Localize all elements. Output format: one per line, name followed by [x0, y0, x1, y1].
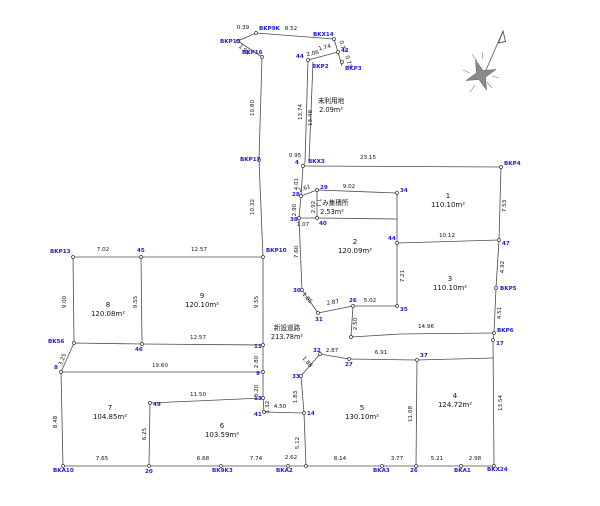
- parcel-area-label: 110.10m²: [433, 284, 467, 292]
- survey-point: [140, 256, 143, 259]
- parcel-area-label: 130.10m²: [345, 413, 379, 421]
- dimension-label: 10.32: [250, 199, 256, 215]
- survey-point: [500, 166, 503, 169]
- dimension-label: 8.52: [285, 26, 297, 32]
- dimension-label: 10.12: [439, 233, 455, 239]
- survey-point-label: 13: [254, 396, 262, 402]
- dimension-label: 2.80: [254, 355, 260, 368]
- dimension-label: 11.50: [190, 392, 206, 398]
- survey-point: [255, 32, 258, 35]
- survey-point-label: BKP2: [312, 64, 329, 70]
- dimension-label: 1.83: [293, 390, 299, 403]
- survey-point-label: 30: [293, 288, 301, 294]
- dimension-label: 2.98: [469, 456, 482, 462]
- dimension-label: 5.12: [295, 437, 301, 449]
- survey-point: [396, 192, 399, 195]
- dimension-label: 2.90: [292, 203, 298, 216]
- survey-point-label: 42: [341, 48, 349, 54]
- survey-point-label: 33: [292, 374, 300, 380]
- dimension-label: 4.51: [497, 306, 503, 319]
- special-area-label: 新設道路: [274, 323, 301, 332]
- dimension-label: 5.02: [364, 298, 376, 304]
- dimension-label: 14.96: [418, 324, 434, 330]
- survey-point: [307, 59, 310, 62]
- survey-point-label: BKA3: [373, 468, 390, 474]
- dimension-label: 10.80: [250, 100, 256, 116]
- survey-point-label: BKP13: [50, 249, 71, 255]
- dimension-label: 13.74: [298, 104, 304, 120]
- survey-point-label: BKP16: [242, 50, 263, 56]
- survey-point: [416, 359, 419, 362]
- survey-point: [352, 305, 355, 308]
- survey-point-label: 38: [290, 217, 298, 223]
- survey-point-label: 49: [153, 402, 161, 408]
- dimension-label: 9.55: [254, 295, 260, 308]
- survey-point-label: 37: [420, 353, 428, 359]
- survey-point-label: BKX24: [487, 467, 508, 473]
- survey-point-label: BKX3: [308, 159, 325, 165]
- survey-point: [60, 371, 63, 374]
- parcel-area-label: 120.10m²: [185, 301, 219, 309]
- survey-point-label: 26: [349, 298, 357, 304]
- dimension-label: 4.50: [274, 404, 287, 410]
- dimension-label: 7.74: [250, 456, 263, 462]
- survey-point-label: BK9K3: [212, 468, 233, 474]
- survey-point: [141, 343, 144, 346]
- parcel-number-label: 5: [360, 404, 364, 412]
- survey-point-label: 44: [388, 236, 396, 242]
- dimension-label: 8.14: [334, 456, 347, 462]
- parcel-number-label: 3: [448, 275, 452, 283]
- survey-point: [300, 375, 303, 378]
- survey-point-label: 44: [296, 54, 304, 60]
- survey-point-label: 8: [54, 365, 58, 371]
- survey-point-label: BKP5: [500, 286, 517, 292]
- parcel-number-label: 2: [353, 238, 357, 246]
- dimension-label: 7.53: [502, 199, 508, 212]
- dimension-label: 11.08: [408, 406, 414, 422]
- survey-point: [350, 336, 353, 339]
- dimension-label: 7.65: [96, 456, 109, 462]
- special-area-label: ごみ集積所: [316, 198, 349, 207]
- survey-point: [305, 465, 308, 468]
- dimension-label: 2.87: [326, 348, 339, 354]
- dimension-label: 0.39: [237, 25, 250, 31]
- survey-point: [149, 402, 152, 405]
- survey-point: [262, 371, 265, 374]
- survey-point: [337, 51, 340, 54]
- survey-point-label: 35: [400, 307, 408, 313]
- dimension-label: 0.95: [289, 153, 302, 159]
- dimension-label: 2.50: [353, 317, 359, 330]
- survey-point-label: 28: [292, 192, 300, 198]
- survey-point: [300, 195, 303, 198]
- parcel-area-label: 110.10m²: [431, 201, 465, 209]
- survey-point-label: BKP6: [497, 328, 514, 334]
- dimension-label: 6.68: [197, 456, 210, 462]
- dimension-label: 19.60: [152, 363, 168, 369]
- survey-point: [72, 256, 75, 259]
- survey-point-label: 41: [254, 412, 262, 418]
- survey-point-label: 40: [319, 221, 327, 227]
- dimension-label: 3.77: [391, 456, 404, 462]
- survey-point-label: BKX14: [313, 32, 334, 38]
- special-area-label: 2.09m²: [319, 106, 343, 114]
- dimension-label: 1.07: [297, 222, 310, 228]
- parcel-area-label: 104.85m²: [93, 413, 127, 421]
- survey-point-label: BKP17: [240, 157, 261, 163]
- survey-point: [317, 312, 320, 315]
- parcel-number-label: 1: [446, 192, 450, 200]
- dimension-label: 5.21: [431, 456, 444, 462]
- cadastral-survey-page: 0.398.521.960.770.731.742.0613.7413.480.…: [0, 0, 600, 506]
- survey-point: [495, 287, 498, 290]
- survey-point: [303, 412, 306, 415]
- parcel-number-label: 9: [200, 292, 204, 300]
- survey-point: [148, 465, 151, 468]
- survey-point-label: 46: [135, 347, 143, 353]
- survey-point: [492, 339, 495, 342]
- survey-point-label: BKP15: [220, 39, 241, 45]
- survey-point-label: BK56: [48, 339, 64, 345]
- dimension-label: 9.55: [133, 295, 139, 308]
- survey-point-label: 47: [502, 241, 510, 247]
- dimension-label: 9.00: [62, 295, 68, 308]
- survey-point-label: 9: [256, 371, 260, 377]
- survey-point-label: BKA2: [276, 468, 293, 474]
- special-area-label: 未利用地: [318, 96, 345, 105]
- survey-point: [302, 165, 305, 168]
- dimension-label: 6.91: [375, 350, 388, 356]
- survey-point-label: BKA1: [454, 468, 471, 474]
- dimension-label: 13.48: [308, 110, 314, 126]
- survey-point-label: BKA10: [53, 468, 74, 474]
- parcel-area-label: 124.72m²: [438, 401, 472, 409]
- survey-point-label: BKP9K: [259, 26, 281, 32]
- dimension-label: 7.02: [97, 247, 109, 253]
- special-area-label: 213.78m²: [271, 333, 303, 341]
- survey-point: [301, 289, 304, 292]
- survey-point: [396, 242, 399, 245]
- survey-point-label: 14: [307, 411, 315, 417]
- survey-point: [493, 332, 496, 335]
- survey-point: [73, 342, 76, 345]
- dimension-label: 2.62: [285, 455, 297, 461]
- dimension-label: 4.92: [500, 261, 506, 273]
- survey-point-label: BKP4: [504, 161, 521, 167]
- dimension-label: 12.57: [191, 247, 207, 253]
- survey-point-label: 34: [400, 188, 408, 194]
- parcel-area-label: 120.08m²: [91, 310, 125, 318]
- survey-point-label: 4: [295, 160, 299, 166]
- survey-point-label: BKP3: [345, 66, 362, 72]
- survey-point-label: 45: [137, 248, 145, 254]
- dimension-label: 12.57: [190, 335, 206, 341]
- survey-point-label: 11: [254, 344, 262, 350]
- survey-point: [262, 256, 265, 259]
- survey-point: [262, 344, 265, 347]
- parcel-area-label: 103.59m²: [205, 431, 239, 439]
- survey-point-label: 27: [345, 362, 353, 368]
- survey-point-label: BKP10: [266, 248, 287, 254]
- survey-point-label: 17: [496, 341, 504, 347]
- survey-point-label: 29: [320, 185, 328, 191]
- dimension-label: 23.15: [360, 155, 376, 161]
- dimension-label: 13.54: [498, 395, 504, 411]
- survey-point-label: 20: [145, 469, 153, 475]
- survey-point: [316, 217, 319, 220]
- dimension-label: 8.48: [53, 415, 59, 428]
- dimension-label: 7.21: [400, 269, 406, 282]
- dimension-label: 1.32: [265, 401, 271, 413]
- survey-point: [348, 358, 351, 361]
- dimension-label: 7.60: [294, 245, 300, 258]
- survey-point: [396, 305, 399, 308]
- cadastral-survey-drawing: 0.398.521.960.770.731.742.0613.7413.480.…: [0, 0, 600, 506]
- survey-point-label: 31: [315, 317, 323, 323]
- survey-point: [316, 189, 319, 192]
- parcel-number-label: 8: [106, 301, 110, 309]
- survey-point: [262, 397, 265, 400]
- dimension-label: 6.25: [142, 427, 148, 440]
- survey-point-label: 32: [313, 348, 321, 354]
- drawing-background: [0, 0, 600, 506]
- dimension-label: 9.02: [343, 184, 355, 190]
- survey-point: [498, 239, 501, 242]
- survey-point-label: 26: [410, 468, 418, 474]
- survey-point: [341, 61, 344, 64]
- special-area-label: 2.53m²: [320, 208, 344, 216]
- parcel-number-label: 6: [220, 422, 225, 430]
- parcel-number-label: 4: [453, 392, 458, 400]
- parcel-area-label: 120.09m²: [338, 247, 372, 255]
- parcel-number-label: 7: [108, 404, 112, 412]
